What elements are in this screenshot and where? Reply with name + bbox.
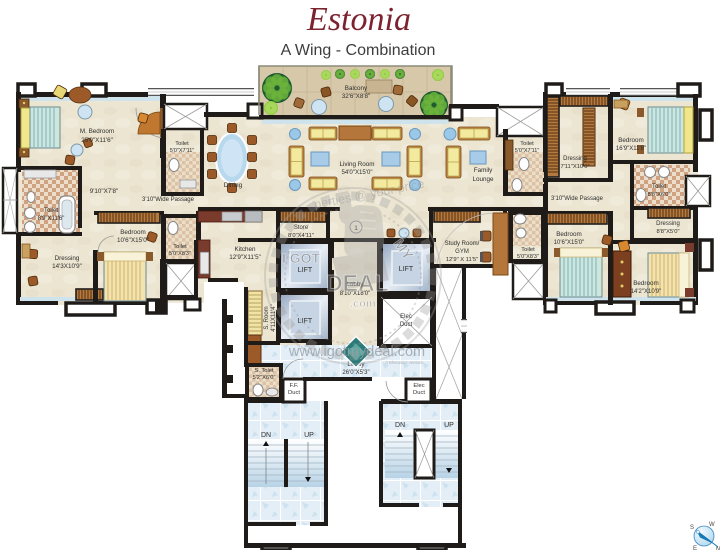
svg-text:Toilet: Toilet	[520, 141, 534, 147]
svg-text:Lounge: Lounge	[472, 176, 494, 183]
svg-text:Elec: Elec	[413, 383, 424, 389]
svg-text:.com: .com	[350, 298, 376, 310]
svg-text:5'0"X8'3": 5'0"X8'3"	[517, 254, 539, 260]
svg-text:14'3X10'9": 14'3X10'9"	[52, 263, 82, 270]
svg-text:Living Room: Living Room	[340, 161, 375, 168]
svg-text:Kitchen: Kitchen	[234, 246, 256, 253]
svg-text:Family: Family	[474, 167, 493, 174]
svg-text:3'10"Wide Passage: 3'10"Wide Passage	[551, 196, 604, 202]
svg-text:8'8"X5'0": 8'8"X5'0"	[656, 229, 679, 235]
svg-text:GYM: GYM	[455, 249, 469, 255]
svg-text:UP: UP	[444, 422, 454, 429]
svg-text:Dressing: Dressing	[563, 156, 587, 162]
svg-text:5'0"X8'3": 5'0"X8'3"	[169, 251, 191, 257]
svg-text:DN: DN	[395, 422, 405, 429]
svg-text:LIFT: LIFT	[399, 266, 414, 273]
svg-text:LIFT: LIFT	[298, 267, 313, 274]
svg-text:Duct: Duct	[288, 390, 300, 396]
svg-text:S. Tolet: S. Tolet	[254, 368, 274, 374]
svg-text:Estonia: Estonia	[306, 1, 411, 38]
svg-text:8'9"X11'6": 8'9"X11'6"	[38, 216, 65, 222]
svg-text:F.F.: F.F.	[289, 383, 298, 389]
svg-text:32'6"X8'8": 32'6"X8'8"	[342, 93, 371, 100]
svg-text:10'6"X15'0": 10'6"X15'0"	[117, 237, 149, 244]
svg-text:5'0"X7'11": 5'0"X7'11"	[515, 148, 540, 154]
svg-text:12'9"X11'5": 12'9"X11'5"	[229, 254, 261, 261]
svg-text:14'2"X10'9": 14'2"X10'9"	[631, 289, 662, 295]
svg-text:Toilet: Toilet	[173, 244, 187, 250]
svg-text:A Wing - Combination: A Wing - Combination	[281, 42, 436, 59]
svg-text:E: E	[693, 546, 697, 550]
svg-text:Bedroom: Bedroom	[556, 231, 582, 238]
svg-text:54'0"X15'0": 54'0"X15'0"	[341, 169, 372, 176]
svg-text:www.igotmydeal.com: www.igotmydeal.com	[288, 344, 425, 360]
svg-text:Duct: Duct	[413, 390, 425, 396]
svg-text:3'10"Wide Passage: 3'10"Wide Passage	[142, 197, 195, 203]
svg-text:Duct: Duct	[400, 322, 413, 328]
svg-text:Bedroom: Bedroom	[633, 280, 659, 287]
svg-text:12'9" X 11'5": 12'9" X 11'5"	[446, 257, 478, 263]
svg-text:7'11"X10'0": 7'11"X10'0"	[560, 164, 589, 170]
svg-text:Dressing: Dressing	[656, 221, 680, 227]
svg-text:Toilet: Toilet	[652, 184, 666, 190]
svg-text:Toilet: Toilet	[44, 208, 58, 214]
svg-text:Toilet: Toilet	[521, 247, 535, 253]
svg-text:S. Room: S. Room	[264, 306, 270, 329]
svg-text:W: W	[709, 522, 715, 528]
svg-text:Bedroom: Bedroom	[618, 137, 644, 144]
svg-text:S: S	[690, 525, 694, 531]
svg-text:8'8"X6'0": 8'8"X6'0"	[647, 192, 670, 198]
svg-text:UP: UP	[304, 432, 314, 439]
svg-text:Dining: Dining	[224, 182, 243, 189]
svg-text:A Bhetanice venture: A Bhetanice venture	[385, 360, 423, 365]
svg-text:Toilet: Toilet	[175, 141, 189, 147]
svg-text:9'10"X7'8": 9'10"X7'8"	[90, 188, 119, 195]
svg-text:26'0"X5'3": 26'0"X5'3"	[342, 370, 369, 376]
svg-text:Study Room/: Study Room/	[445, 241, 480, 247]
svg-text:10'6"X15'0": 10'6"X15'0"	[554, 240, 585, 246]
svg-text:Bedroom: Bedroom	[120, 229, 146, 236]
svg-text:Balcony: Balcony	[345, 85, 368, 92]
svg-text:M. Bedroom: M. Bedroom	[80, 128, 114, 135]
svg-text:25'0"X11'6": 25'0"X11'6"	[81, 137, 113, 144]
svg-text:DEAL: DEAL	[326, 270, 389, 296]
svg-text:5'0"X7'11": 5'0"X7'11"	[170, 148, 195, 154]
svg-text:I GOT: I GOT	[282, 250, 321, 266]
svg-text:Dressing: Dressing	[55, 255, 80, 262]
svg-text:DN: DN	[261, 432, 271, 439]
svg-text:8'0"X4'11": 8'0"X4'11"	[288, 233, 314, 239]
svg-text:5'2"X6'0": 5'2"X6'0"	[252, 375, 275, 381]
svg-text:16'9"X11'8": 16'9"X11'8"	[616, 146, 646, 152]
